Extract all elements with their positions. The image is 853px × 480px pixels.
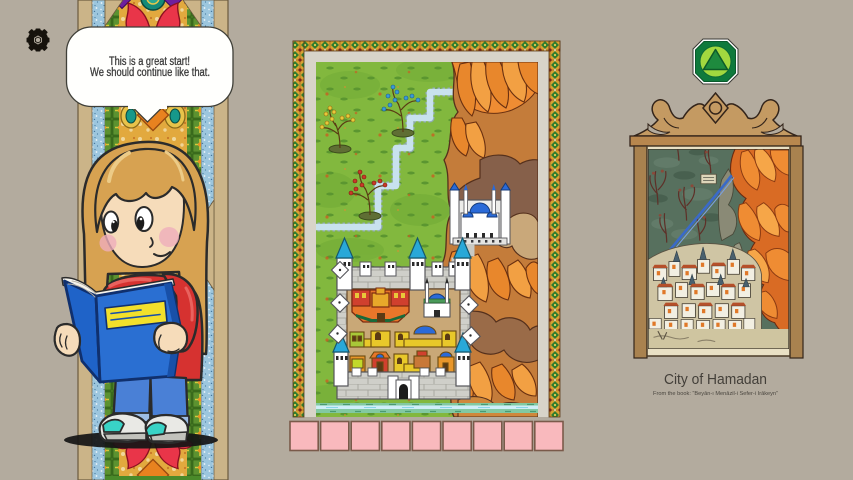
svg-text:From the book: “Beyān-ı Menāzi: From the book: “Beyān-ı Menāzil-i Sefer-… — [653, 391, 778, 397]
svg-text:City of Hamadan: City of Hamadan — [664, 372, 767, 388]
svg-text:We should continue like that.: We should continue like that. — [90, 67, 210, 79]
